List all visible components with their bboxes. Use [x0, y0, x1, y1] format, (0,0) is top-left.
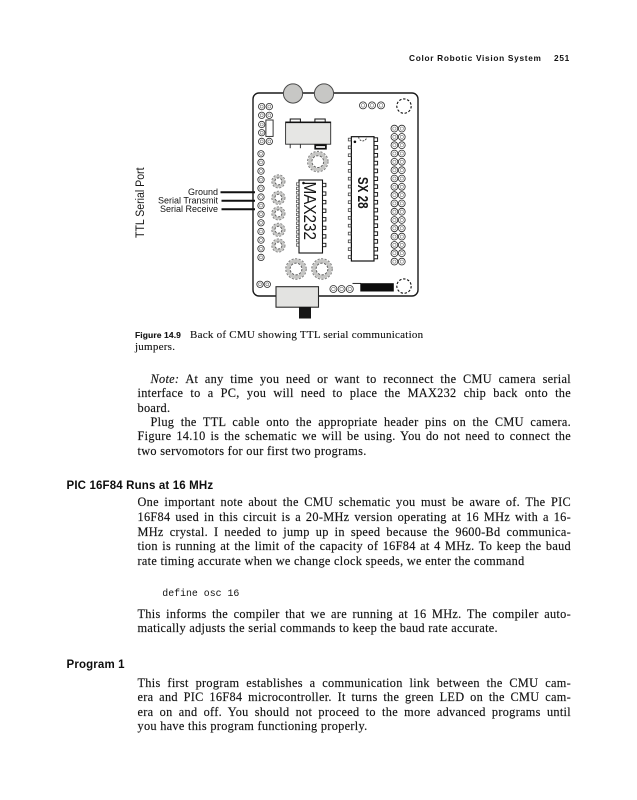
- svg-text:TTL Serial Port: TTL Serial Port: [135, 167, 147, 238]
- svg-text:Serial Receive: Serial Receive: [160, 204, 218, 214]
- svg-text:SX 28: SX 28: [354, 177, 371, 209]
- svg-text:MAX232: MAX232: [300, 182, 320, 241]
